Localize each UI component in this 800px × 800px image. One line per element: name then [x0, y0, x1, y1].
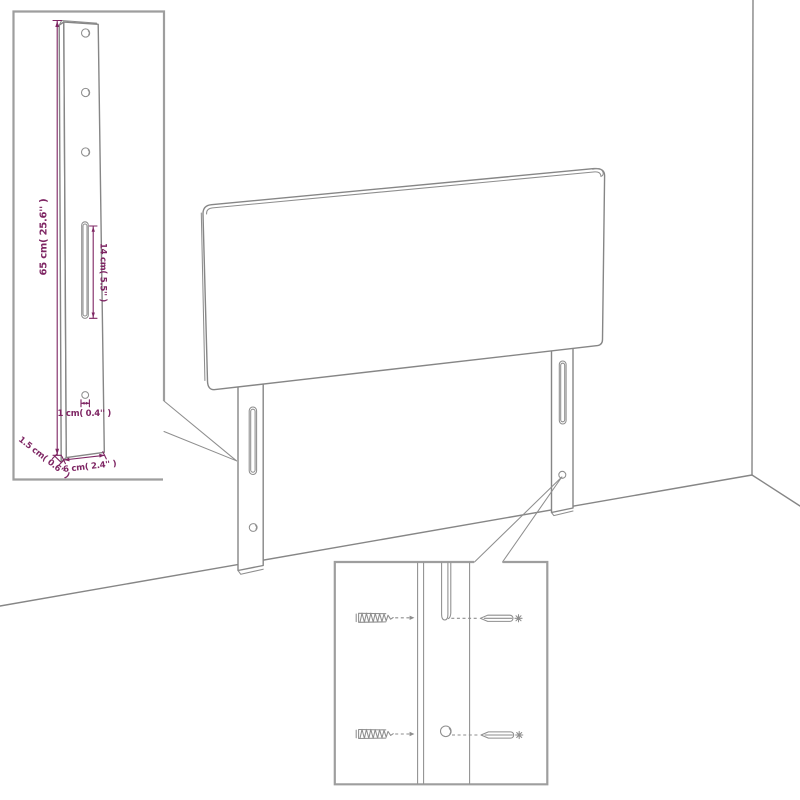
- headboard-left-leg: [238, 381, 263, 575]
- callout-line: [164, 401, 237, 461]
- callout-line: [475, 477, 562, 562]
- slot-end-magnified: [442, 563, 448, 620]
- slot-end-depth: [448, 563, 451, 619]
- height-dimension: 65 cm( 25.6'' ): [39, 21, 62, 456]
- assembly-diagram: 65 cm( 25.6'' ) 14 cm( 5.5'' ) 1 cm( 0.4…: [0, 0, 800, 800]
- machine-screw-bottom: [452, 731, 523, 738]
- detail-inset-leg: 65 cm( 25.6'' ) 14 cm( 5.5'' ) 1 cm( 0.4…: [14, 12, 165, 482]
- callout-left-leg: [164, 401, 237, 461]
- left-leg-body: [238, 381, 263, 571]
- callout-right-leg: [475, 477, 562, 562]
- floor-line-left: [0, 475, 752, 606]
- width-dimension-label: 6 cm( 2.4'' ): [63, 459, 118, 475]
- inset-border: [335, 562, 548, 784]
- wood-screw-bottom: [356, 729, 414, 738]
- product-diagram-page: 65 cm( 25.6'' ) 14 cm( 5.5'' ) 1 cm( 0.4…: [0, 0, 800, 800]
- slot-dimension-label: 14 cm( 5.5'' ): [98, 243, 108, 302]
- headboard-right-leg: [552, 344, 574, 516]
- floor-line-right: [752, 475, 800, 506]
- wood-screw-top: [356, 613, 414, 622]
- headboard-panel: [201, 168, 604, 389]
- height-dimension-label: 65 cm( 25.6'' ): [39, 199, 50, 276]
- wall-corner-line: [752, 0, 753, 475]
- machine-screw-top: [451, 615, 522, 622]
- callout-line: [503, 477, 562, 562]
- detail-inset-screws: [335, 562, 548, 784]
- hole-magnified: [441, 726, 452, 737]
- panel-face: [203, 169, 605, 390]
- callout-line: [164, 432, 237, 461]
- hole-dimension-label: 1 cm( 0.4'' ): [58, 409, 112, 419]
- hole-magnified-depth: [449, 729, 450, 735]
